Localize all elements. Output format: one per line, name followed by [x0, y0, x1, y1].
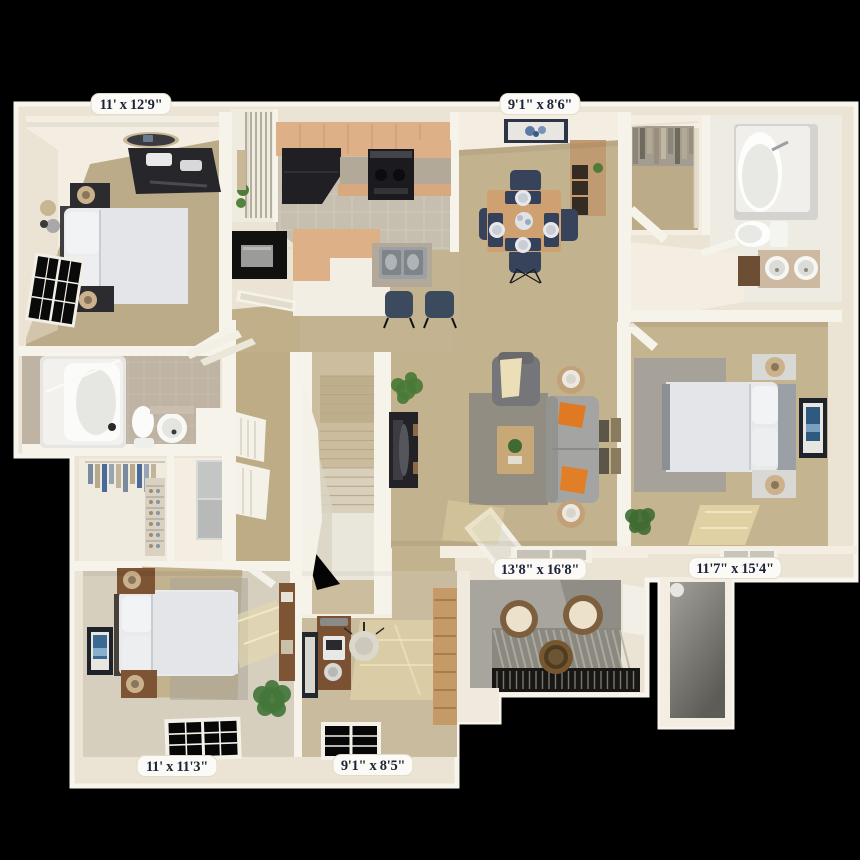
- svg-text:11' x 12'9": 11' x 12'9": [100, 97, 163, 113]
- svg-text:13'8" x 16'8": 13'8" x 16'8": [501, 562, 579, 578]
- svg-text:11' x 11'3": 11' x 11'3": [146, 759, 208, 775]
- svg-text:9'1" x 8'6": 9'1" x 8'6": [508, 97, 572, 113]
- svg-text:11'7" x 15'4": 11'7" x 15'4": [696, 561, 773, 577]
- svg-text:9'1" x 8'5": 9'1" x 8'5": [341, 758, 405, 774]
